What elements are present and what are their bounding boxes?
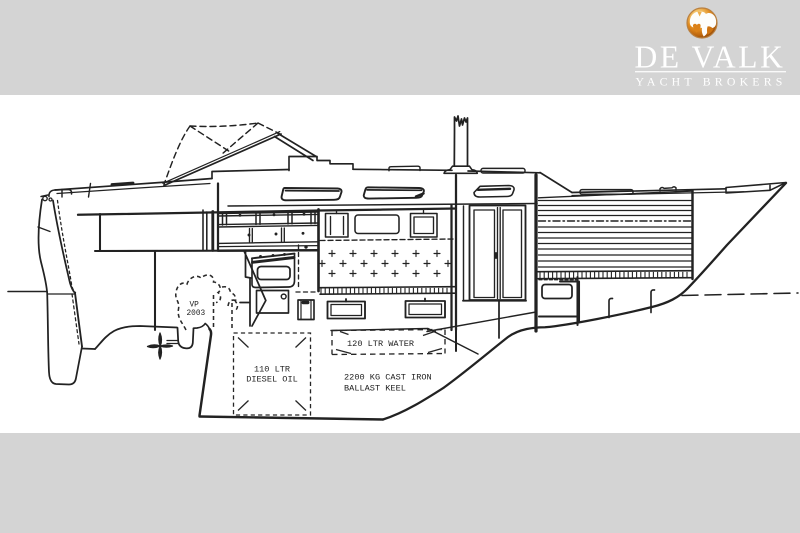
svg-text:DIESEL OIL: DIESEL OIL: [246, 375, 298, 385]
svg-text:BALLAST KEEL: BALLAST KEEL: [344, 384, 406, 394]
svg-text:2200 KG CAST IRON: 2200 KG CAST IRON: [344, 373, 432, 383]
svg-text:YACHT BROKERS: YACHT BROKERS: [635, 75, 786, 89]
svg-text:110 LTR: 110 LTR: [254, 365, 290, 375]
svg-text:VP: VP: [190, 302, 200, 310]
svg-text:120 LTR WATER: 120 LTR WATER: [347, 339, 414, 349]
svg-text:2003: 2003: [187, 310, 206, 318]
svg-text:DE VALK: DE VALK: [635, 40, 786, 75]
